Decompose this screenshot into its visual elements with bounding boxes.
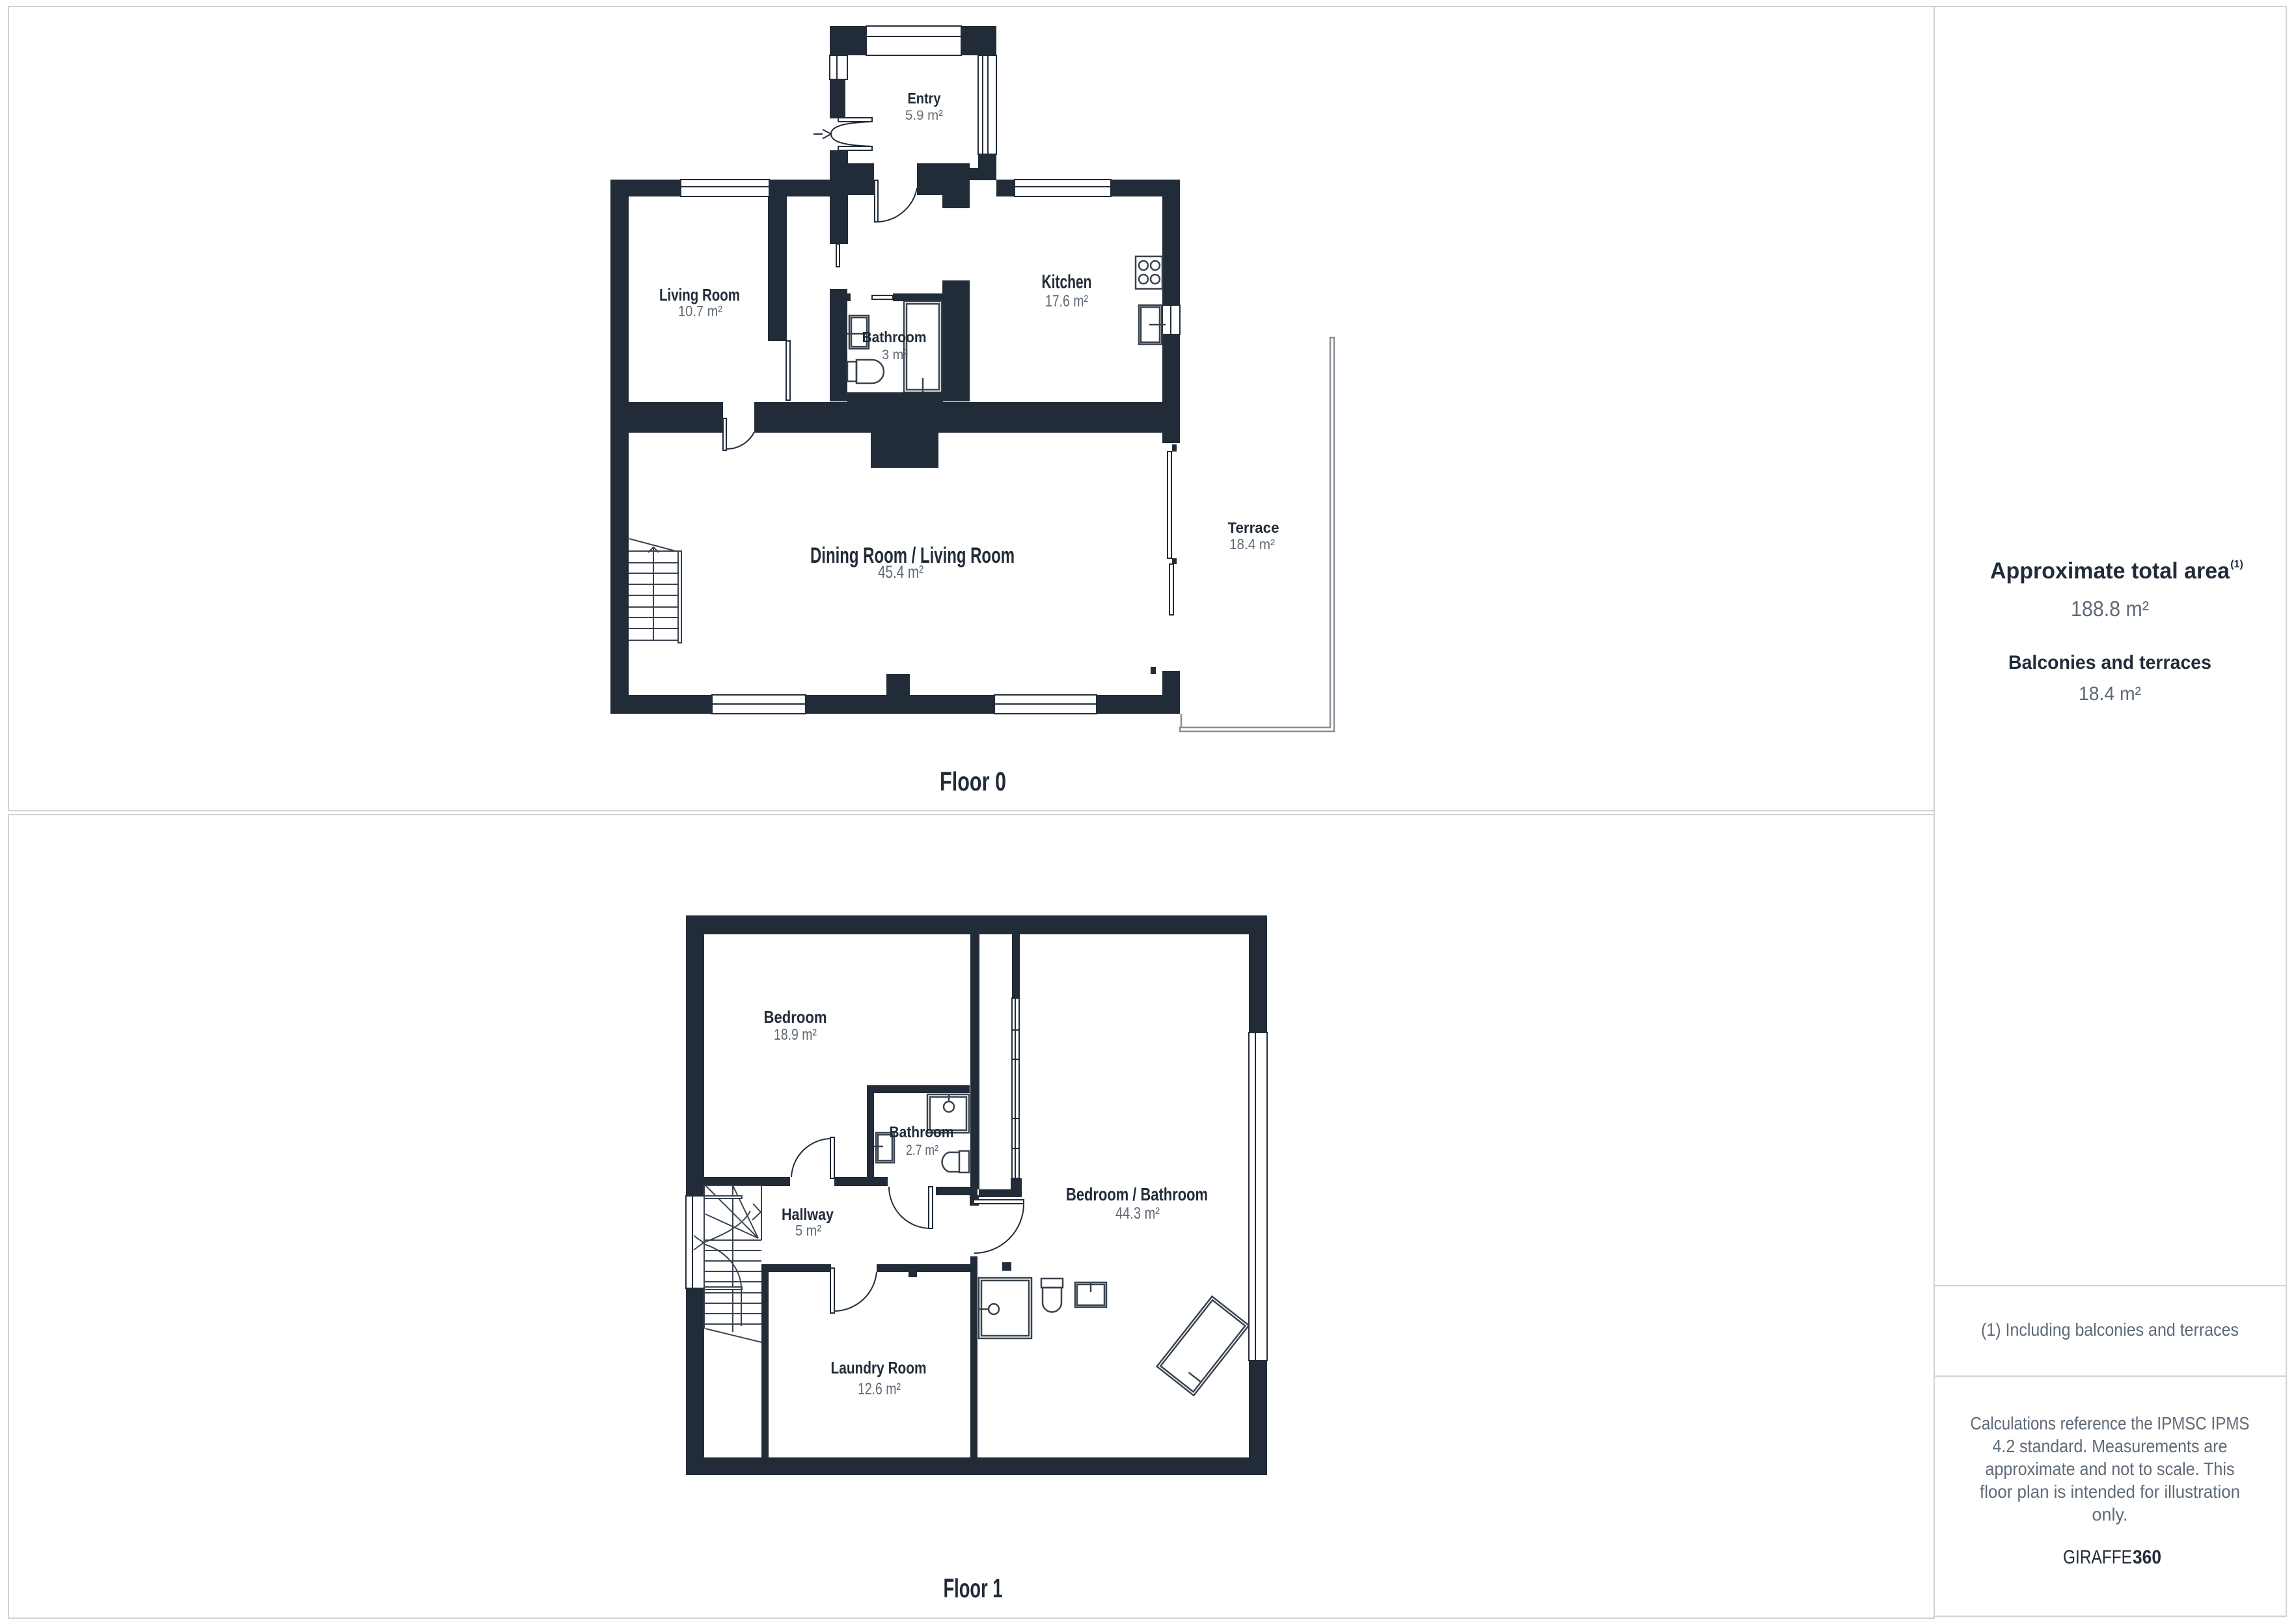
svg-text:only.: only.	[2092, 1504, 2128, 1524]
svg-text:12.6 m²: 12.6 m²	[858, 1380, 901, 1398]
svg-text:Kitchen: Kitchen	[1042, 271, 1092, 293]
svg-text:18.4 m²: 18.4 m²	[2079, 683, 2141, 705]
svg-text:Bathroom: Bathroom	[890, 1124, 954, 1141]
svg-text:Bedroom / Bathroom: Bedroom / Bathroom	[1066, 1184, 1208, 1204]
svg-text:188.8 m²: 188.8 m²	[2071, 597, 2149, 621]
svg-text:44.3 m²: 44.3 m²	[1115, 1204, 1160, 1223]
svg-text:Living Room: Living Room	[659, 285, 740, 304]
svg-text:Bedroom: Bedroom	[764, 1007, 827, 1027]
svg-text:17.6 m²: 17.6 m²	[1045, 292, 1088, 310]
svg-text:18.4 m²: 18.4 m²	[1229, 536, 1275, 552]
svg-text:floor plan is intended for ill: floor plan is intended for illustration	[1980, 1482, 2240, 1502]
svg-text:approximate and not to scale.: approximate and not to scale. This	[1986, 1459, 2235, 1479]
svg-text:Bathroom: Bathroom	[862, 329, 927, 345]
svg-text:45.4 m²: 45.4 m²	[878, 562, 923, 582]
svg-text:5.9 m²: 5.9 m²	[905, 108, 943, 123]
svg-text:Floor 0: Floor 0	[940, 766, 1006, 796]
svg-text:Entry: Entry	[908, 90, 941, 107]
svg-text:GIRAFFE: GIRAFFE	[2063, 1547, 2132, 1568]
svg-text:Laundry Room: Laundry Room	[831, 1358, 927, 1377]
svg-text:Hallway: Hallway	[782, 1206, 834, 1224]
svg-text:Balconies and terraces: Balconies and terraces	[2008, 652, 2211, 673]
svg-text:5 m²: 5 m²	[795, 1222, 821, 1239]
svg-text:(1) Including balconies and te: (1) Including balconies and terraces	[1981, 1319, 2239, 1340]
svg-text:Floor 1: Floor 1	[944, 1573, 1003, 1603]
svg-text:Calculations reference the IPM: Calculations reference the IPMSC IPMS	[1971, 1413, 2250, 1433]
svg-text:(1): (1)	[2230, 559, 2243, 570]
svg-text:10.7 m²: 10.7 m²	[678, 303, 722, 319]
svg-text:360: 360	[2133, 1547, 2161, 1568]
svg-text:Terrace: Terrace	[1228, 519, 1279, 536]
svg-text:3 m²: 3 m²	[882, 347, 908, 362]
svg-text:4.2 standard. Measurements are: 4.2 standard. Measurements are	[1993, 1436, 2228, 1456]
svg-text:2.7 m²: 2.7 m²	[906, 1142, 938, 1158]
svg-text:Approximate total area: Approximate total area	[1990, 558, 2230, 584]
svg-text:18.9 m²: 18.9 m²	[774, 1026, 817, 1044]
